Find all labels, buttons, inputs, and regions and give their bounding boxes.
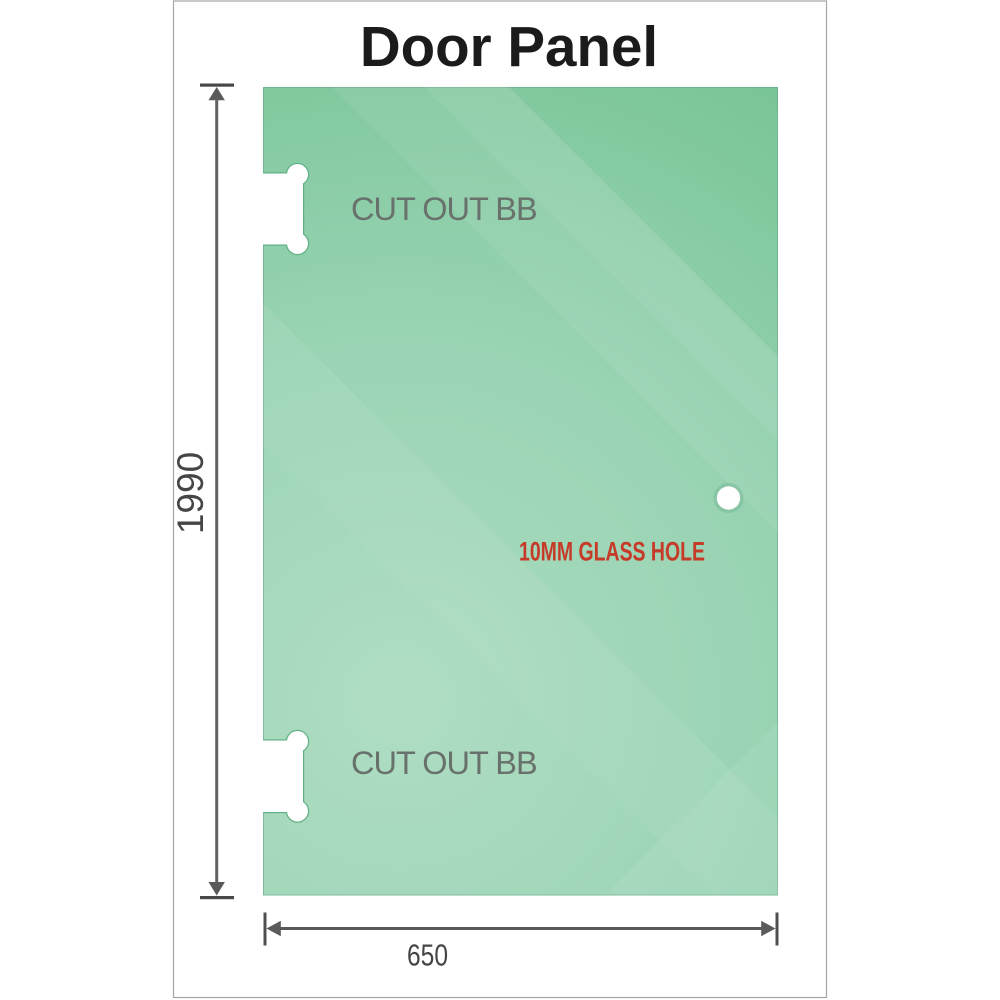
- svg-text:10MM GLASS HOLE: 10MM GLASS HOLE: [519, 537, 705, 567]
- svg-text:Door Panel: Door Panel: [360, 15, 658, 78]
- svg-text:650: 650: [407, 939, 448, 973]
- svg-text:CUT OUT BB: CUT OUT BB: [351, 191, 537, 227]
- svg-text:1990: 1990: [170, 452, 211, 534]
- svg-text:CUT OUT BB: CUT OUT BB: [351, 745, 537, 781]
